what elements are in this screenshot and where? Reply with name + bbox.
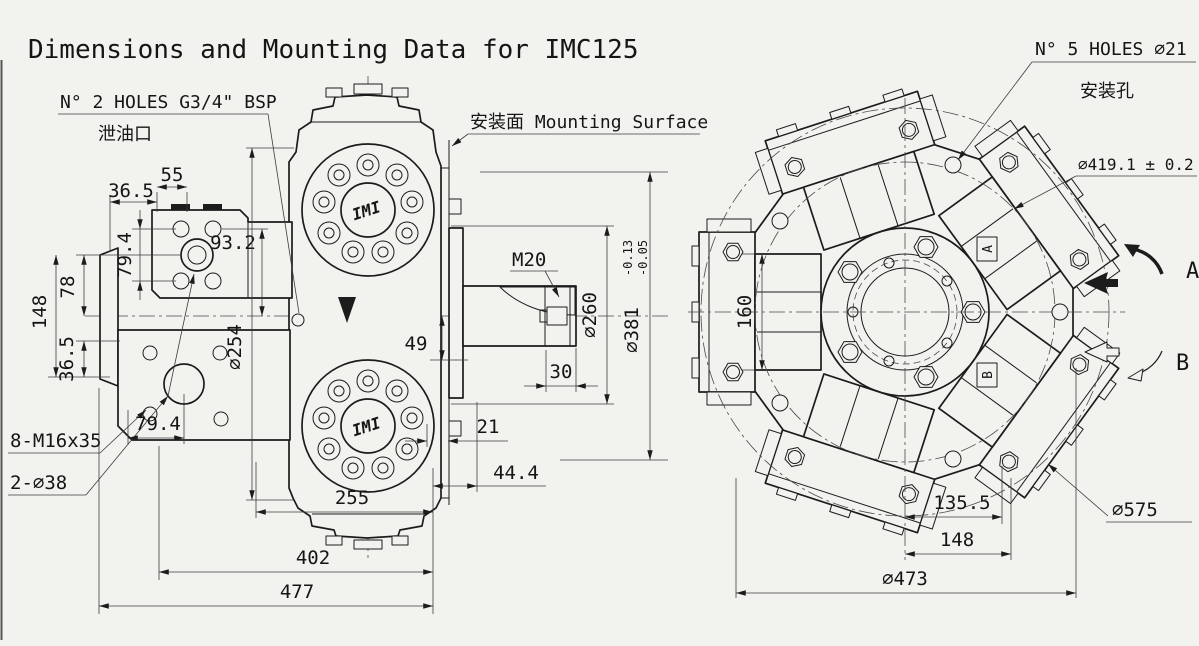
- front-view: A B N° 5 HOLES ∅21 安装孔 ∅419.1 ± 0.2 A: [688, 39, 1199, 598]
- note-holes-38-label: 2-∅38: [10, 472, 67, 494]
- dim-477-text: 477: [280, 581, 314, 603]
- dim-79-4-bottom-text: 79.4: [135, 413, 181, 435]
- note-mounting-surface-label: 安装面 Mounting Surface: [470, 112, 708, 133]
- dim-49-text: 49: [405, 333, 428, 355]
- dim-260-text: ∅260: [579, 292, 601, 338]
- dim-148-text: 148: [29, 295, 51, 329]
- dim-160-text: 160: [734, 295, 756, 329]
- dim-402-text: 402: [296, 547, 330, 569]
- dim-30: 30: [524, 348, 598, 392]
- port-mark-b: B: [977, 363, 997, 387]
- cylinder-head-bottom: IMI: [302, 360, 434, 492]
- port-a-letter: A: [981, 245, 996, 253]
- dim-36-5-bottom-text: 36.5: [56, 336, 78, 382]
- dim-575-text: ∅575: [1112, 499, 1158, 521]
- note-bolts-label: 8-M16x35: [10, 430, 102, 452]
- dim-78-text: 78: [57, 276, 79, 299]
- dim-381-tol-upper: -0.05: [636, 240, 650, 276]
- dim-93-2-text: 93.2: [210, 232, 256, 254]
- label-direction-b: B: [1176, 351, 1189, 376]
- dim-255-text: 255: [335, 487, 369, 509]
- dim-30-text: 30: [550, 361, 573, 383]
- dim-381-text: ∅381: [621, 307, 643, 353]
- note-419-label: ∅419.1 ± 0.2: [1078, 155, 1194, 174]
- note-holes-21-label: N° 5 HOLES ∅21: [1035, 39, 1187, 60]
- port-b-letter: B: [981, 371, 996, 379]
- dim-21-text: 21: [477, 416, 500, 438]
- engineering-drawing: Dimensions and Mounting Data for IMC125: [0, 0, 1199, 646]
- port-mark-a: A: [977, 237, 997, 261]
- dim-473-text: ∅473: [882, 568, 928, 590]
- label-direction-a: A: [1186, 259, 1199, 284]
- note-mounting-surface: 安装面 Mounting Surface: [452, 112, 708, 146]
- note-drain-port: 泄油口: [98, 124, 152, 145]
- dim-135-5-text: 135.5: [933, 492, 990, 514]
- dim-254: ∅254: [224, 148, 294, 500]
- dim-44-4-text: 44.4: [493, 462, 539, 484]
- dim-55-text: 55: [161, 164, 184, 186]
- note-holes-g34-label: N° 2 HOLES G3/4" BSP: [60, 92, 277, 113]
- m20-tapped-hole: [547, 307, 567, 325]
- pivot-detail: [292, 314, 304, 326]
- side-view: IMI IMI: [8, 76, 708, 614]
- arrow-a-curved-icon: [1133, 249, 1162, 274]
- page-title: Dimensions and Mounting Data for IMC125: [28, 35, 638, 65]
- note-mounting-holes-label: 安装孔: [1080, 81, 1134, 102]
- cylinder-head-top: IMI: [302, 144, 434, 276]
- dim-254-text: ∅254: [224, 324, 246, 370]
- dim-148-front-text: 148: [940, 529, 974, 551]
- drawing-canvas: Dimensions and Mounting Data for IMC125: [0, 0, 1199, 646]
- dim-381-tol-lower: -0.13: [621, 240, 635, 276]
- dim-36-5-top-text: 36.5: [108, 180, 154, 202]
- note-m20-label: M20: [512, 249, 546, 271]
- dim-575: ∅575: [1048, 464, 1192, 522]
